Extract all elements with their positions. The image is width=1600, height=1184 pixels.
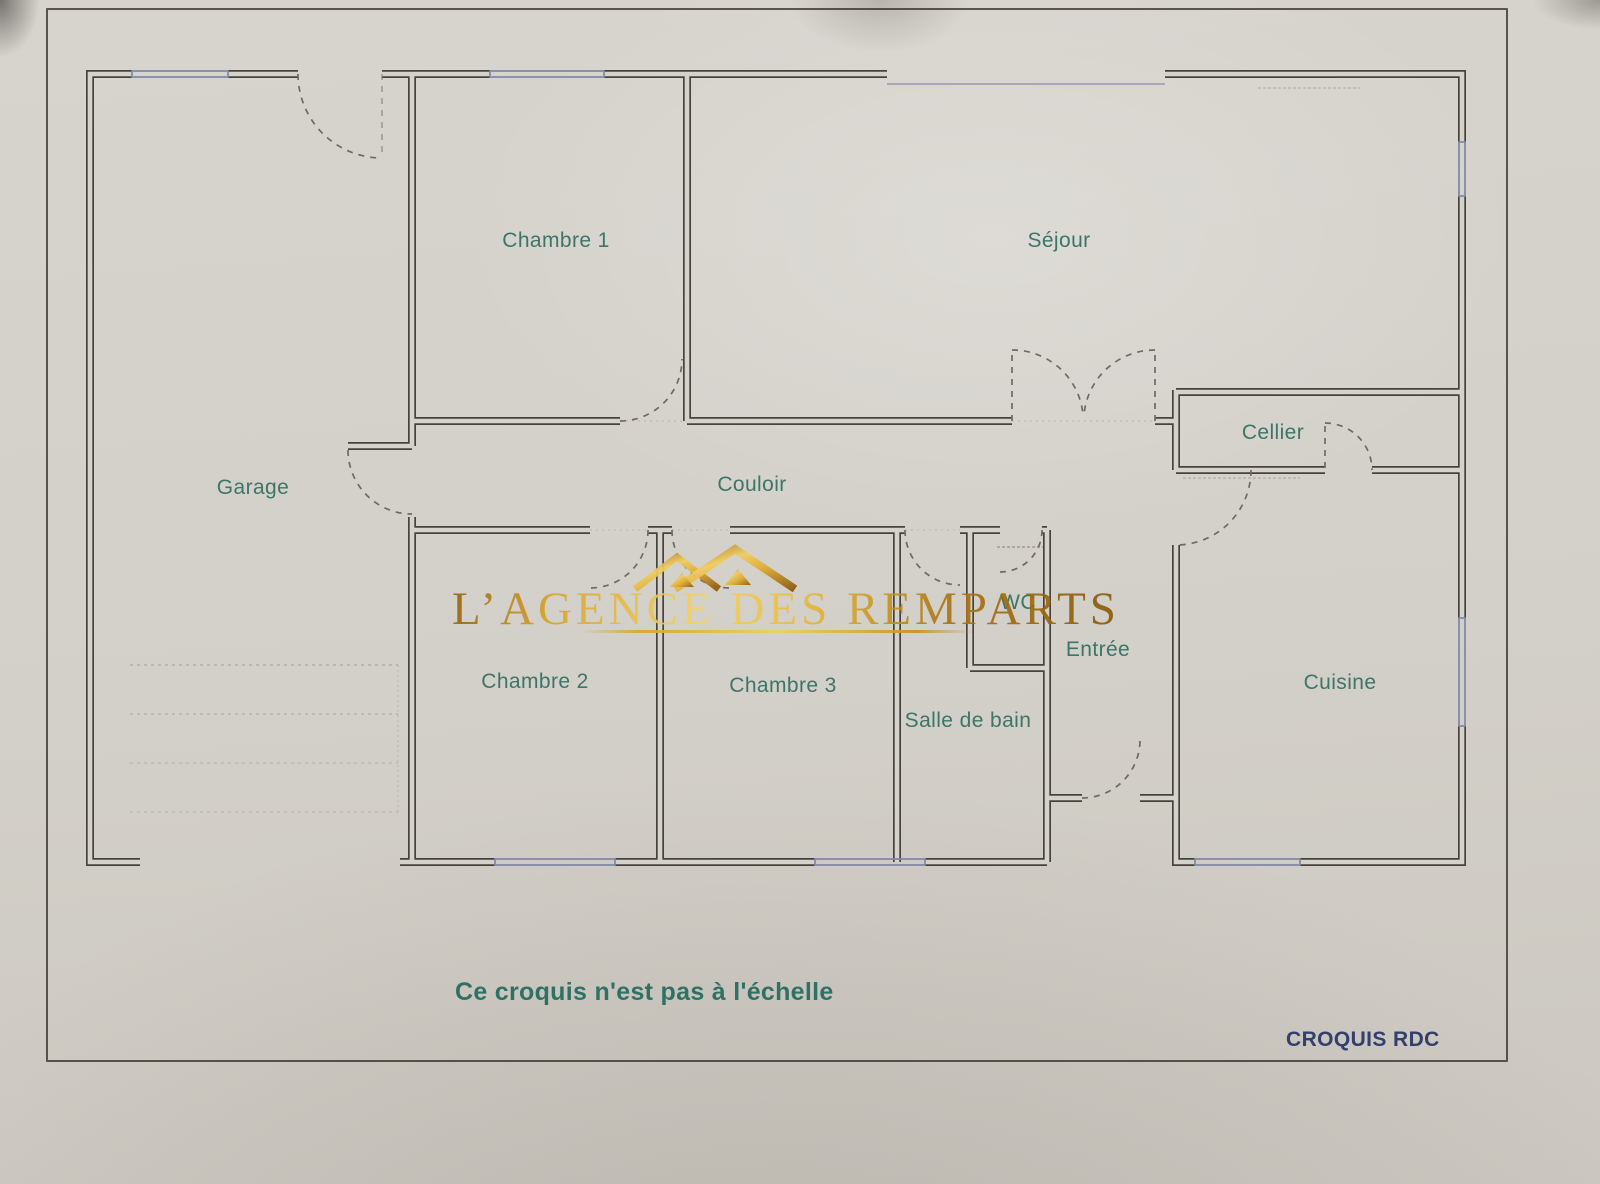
photo-background: Chambre 1SéjourGarageCouloirCellierChamb…	[0, 0, 1600, 1184]
room-label-garage: Garage	[217, 476, 289, 500]
room-label-chambre-1: Chambre 1	[502, 229, 609, 253]
room-label-entree: Entrée	[1066, 638, 1130, 662]
room-label-chambre-2: Chambre 2	[481, 670, 588, 694]
room-label-cuisine: Cuisine	[1304, 671, 1377, 695]
scale-note: Ce croquis n'est pas à l'échelle	[455, 978, 834, 1007]
walls-inner	[90, 74, 1462, 862]
room-label-wc: WC	[1000, 591, 1036, 615]
room-label-chambre-3: Chambre 3	[729, 674, 836, 698]
plan-reference: CROQUIS RDC	[1286, 1028, 1440, 1052]
room-label-salle-de-bain: Salle de bain	[905, 709, 1032, 733]
garage-floor-lines	[130, 665, 398, 812]
room-label-sejour: Séjour	[1027, 229, 1090, 253]
threshold-lines	[590, 421, 1155, 530]
room-label-cellier: Cellier	[1242, 421, 1304, 445]
room-label-couloir: Couloir	[717, 473, 786, 497]
stamp-marks	[997, 88, 1360, 547]
